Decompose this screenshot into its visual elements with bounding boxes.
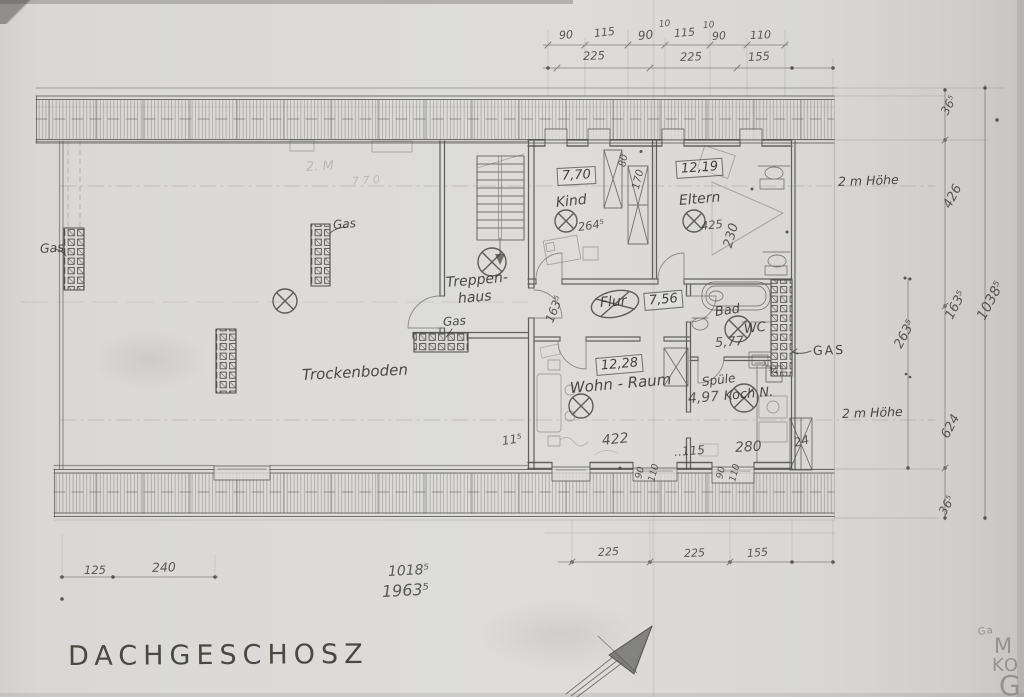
room-bad: Bad <box>714 303 741 319</box>
vent-symbol <box>555 210 577 232</box>
vent-symbols <box>273 210 758 418</box>
dim-top-115-b: 115 <box>674 27 696 39</box>
plan-title: DACHGESCHOSZ <box>68 639 369 672</box>
room-wc: WC <box>743 321 766 336</box>
dim-top-90-c: 90 <box>712 30 727 42</box>
room-treppenhaus-line2: haus <box>457 289 492 306</box>
roof-band-top <box>36 96 834 143</box>
label-gas-stair: Gas <box>443 314 467 328</box>
chimney-blocks <box>64 141 792 393</box>
corner-letterhead-g: G <box>999 672 1022 697</box>
vent-symbol <box>569 394 593 418</box>
label-gas-left: Gas <box>40 241 65 255</box>
room-kind: Kind <box>555 193 587 210</box>
dim-bottom-225-a: 225 <box>598 546 620 558</box>
dim-int-11-left: 11⁵ <box>501 432 523 447</box>
label-gas-right: GAS <box>813 344 846 358</box>
dim-top-110: 110 <box>750 29 771 41</box>
dim-int-422: 422 <box>601 431 629 448</box>
corner-letterhead-m: M <box>994 636 1013 657</box>
scanned-floor-plan-paper: 9011590101151090110225225155225225155125… <box>0 0 1024 697</box>
note-2m-hoehe-top: 2 m Höhe <box>838 174 899 189</box>
dim-bottom-240: 240 <box>152 561 176 574</box>
room-flur: Flur <box>600 294 627 310</box>
dim-bottom-225-b: 225 <box>684 547 705 559</box>
dim-bottom-155: 155 <box>747 547 769 559</box>
area-eltern: 12,19 <box>675 158 723 179</box>
dim-int-280: 280 <box>735 440 762 455</box>
note-erased-number: 7 7 0 <box>352 174 381 187</box>
dim-int-24: 24 <box>793 433 811 448</box>
dim-eltern-425: 425 <box>700 219 723 233</box>
note-erased-text: 2. M <box>306 160 334 174</box>
note-2m-hoehe-bottom: 2 m Höhe <box>842 406 903 421</box>
dim-bad-577: 5,77 <box>715 335 745 350</box>
stairs <box>477 154 524 265</box>
room-eltern: Eltern <box>678 190 721 208</box>
dim-overall-1018: 1018⁵ <box>388 563 430 579</box>
dim-top-155: 155 <box>748 51 771 64</box>
dim-top-90-a: 90 <box>559 29 574 41</box>
vent-symbol <box>273 289 297 313</box>
dim-bottom-125: 125 <box>84 565 106 577</box>
dim-top-115-a: 115 <box>593 26 615 39</box>
dim-int-115: ‥115 <box>674 444 706 458</box>
dim-top-90-b: 90 <box>637 28 653 42</box>
floor-plan-drawing <box>0 0 1024 697</box>
label-gas-mid: Gas <box>332 217 356 231</box>
dim-koch-497: 4,97 <box>688 390 720 406</box>
dim-top-225-a: 225 <box>583 50 605 62</box>
label-kitchen-fraction: ¾ <box>769 368 778 377</box>
dim-overall-1963: 1963⁵ <box>382 582 430 600</box>
area-kind: 7,70 <box>557 166 597 186</box>
dim-top-225-b: 225 <box>680 51 702 63</box>
area-flur: 7,56 <box>643 290 683 311</box>
dim-top-10-a: 10 <box>659 20 671 30</box>
north-arrow <box>566 626 652 697</box>
